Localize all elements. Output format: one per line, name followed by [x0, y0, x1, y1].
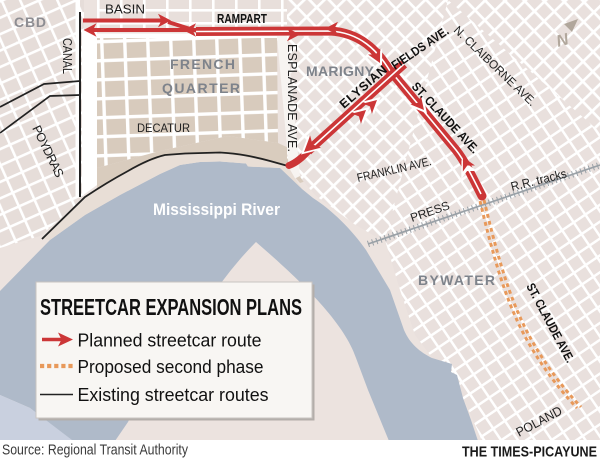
svg-text:Planned streetcar route: Planned streetcar route	[78, 331, 262, 351]
svg-text:DECATUR: DECATUR	[137, 121, 190, 135]
svg-text:BYWATER: BYWATER	[418, 272, 495, 288]
svg-text:Mississippi River: Mississippi River	[153, 201, 281, 219]
svg-text:STREETCAR EXPANSION PLANS: STREETCAR EXPANSION PLANS	[40, 294, 302, 320]
svg-text:CBD: CBD	[14, 14, 46, 30]
svg-text:RAMPART: RAMPART	[217, 12, 267, 26]
svg-text:CANAL: CANAL	[60, 38, 74, 74]
svg-text:ESPLANADE AVE.: ESPLANADE AVE.	[285, 44, 299, 152]
svg-text:Existing streetcar routes: Existing streetcar routes	[78, 385, 269, 405]
svg-text:BASIN: BASIN	[105, 2, 145, 17]
svg-text:Source: Regional Transit Autho: Source: Regional Transit Authority	[2, 442, 188, 459]
svg-text:THE TIMES-PICAYUNE: THE TIMES-PICAYUNE	[462, 444, 597, 460]
svg-text:Proposed second phase: Proposed second phase	[78, 357, 264, 377]
svg-text:QUARTER: QUARTER	[162, 80, 240, 96]
svg-text:FRENCH: FRENCH	[170, 56, 235, 72]
